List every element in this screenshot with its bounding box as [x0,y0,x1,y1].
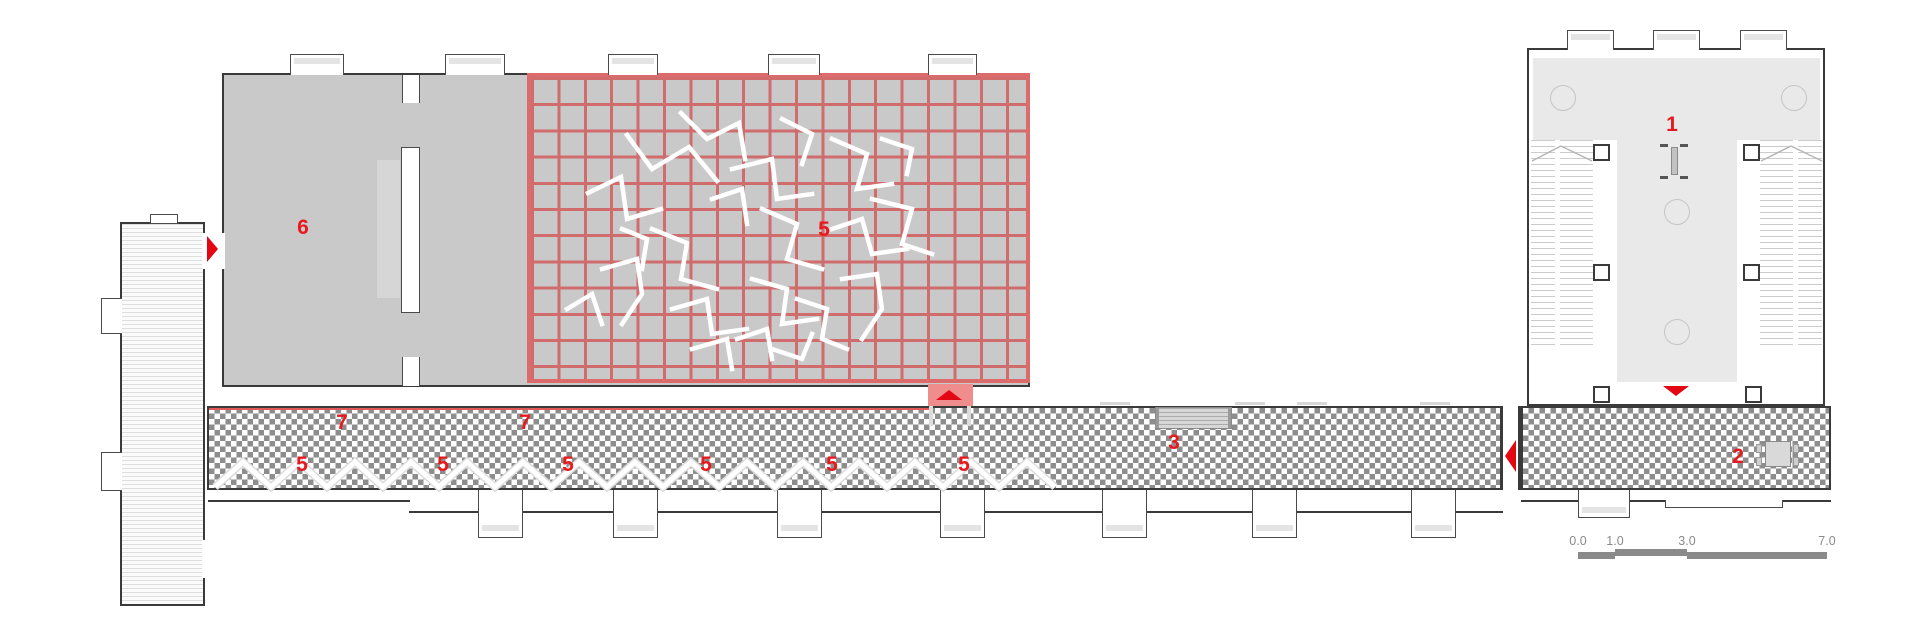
scale-segment [1687,552,1827,559]
window-bay [1252,490,1297,538]
facade-line [208,500,410,502]
corridor-label-5: 5 [695,452,717,478]
wing-left-bump [101,452,122,491]
door-arrow-left-icon [1505,440,1516,472]
window-bay [1411,490,1456,538]
door-jamb [967,406,971,426]
chair [1660,144,1668,147]
corridor-end-wall [1500,406,1503,490]
window-bay [777,490,822,538]
window-mark [1297,402,1327,405]
column-circle [1664,319,1690,345]
column-circle [1550,85,1576,111]
table [1671,147,1678,175]
window-mark [1420,402,1450,405]
window-bay [613,490,658,538]
staircase [1760,140,1822,345]
column [1593,386,1610,403]
window-mark [1235,402,1265,405]
corridor-label-5: 5 [821,452,843,478]
window-mark [1100,402,1130,405]
chair [1793,444,1799,453]
column [1745,386,1762,403]
corridor-label-5: 5 [557,452,579,478]
window-bay [608,54,658,75]
chair [1756,444,1762,453]
window-bay [1578,490,1630,518]
partition-wall-slot [402,75,420,103]
room-5-grid-floor [527,73,1030,383]
display-panel [377,160,400,298]
partition-wall-slot [402,357,420,386]
corridor-label-5: 5 [953,452,975,478]
column-circle [1781,85,1807,111]
scale-segment [1615,549,1687,556]
chair [1793,457,1799,466]
door-arrow-down-icon [1663,386,1689,396]
column-circle [1664,199,1690,225]
facade-step [1665,500,1783,508]
window-bay [1653,30,1700,50]
lobby-floor [1617,140,1737,382]
table [1765,441,1791,467]
wing-top-bump [150,214,178,224]
corridor-label-7: 7 [514,410,536,436]
staircase [1531,140,1593,345]
window-bay [290,54,344,75]
wing-door-opening [202,540,208,578]
scale-tick-label: 0.0 [1558,534,1598,548]
corridor [207,406,1500,490]
room-label-1: 1 [1661,112,1683,138]
title-block: "SCUFITA MAGENTA" | 2023 PLAN AMENAJARE … [1631,585,1833,628]
bench [1155,407,1232,429]
floor-plan-canvas: 0.0 1.0 3.0 7.0 "SCUFITA MAGENTA" | 2023… [0,0,1920,628]
window-bay [478,490,523,538]
room-label-3: 3 [1163,430,1185,456]
scale-tick-label: 3.0 [1667,534,1707,548]
room-label-2: 2 [1727,444,1749,470]
window-bay [1102,490,1147,538]
chair [1660,176,1668,179]
window-bay [445,54,505,75]
column [1743,144,1760,161]
chair [1680,144,1688,147]
chair [1756,457,1762,466]
window-bay [940,490,985,538]
column [1743,264,1760,281]
door-arrow-right-icon [207,236,218,262]
window-bay [1567,30,1614,50]
corridor-label-5: 5 [432,452,454,478]
scale-tick-label: 7.0 [1807,534,1847,548]
corridor-label-7: 7 [331,410,353,436]
door-arrow-up-icon [936,390,962,400]
room-label-5: 5 [813,217,835,243]
chair [1680,176,1688,179]
stair-wing [120,222,205,606]
corridor-label-5: 5 [291,452,313,478]
window-bay [768,54,820,75]
window-bay [1740,30,1787,50]
window-bay [928,54,977,75]
wing-left-bump [101,298,122,334]
room-label-6: 6 [292,215,314,241]
room-6-door-opening [221,233,225,269]
door-jamb [929,406,933,426]
column [1593,264,1610,281]
scale-tick-label: 1.0 [1595,534,1635,548]
partition-wall [401,147,420,313]
column [1593,144,1610,161]
scale-segment [1578,552,1615,559]
